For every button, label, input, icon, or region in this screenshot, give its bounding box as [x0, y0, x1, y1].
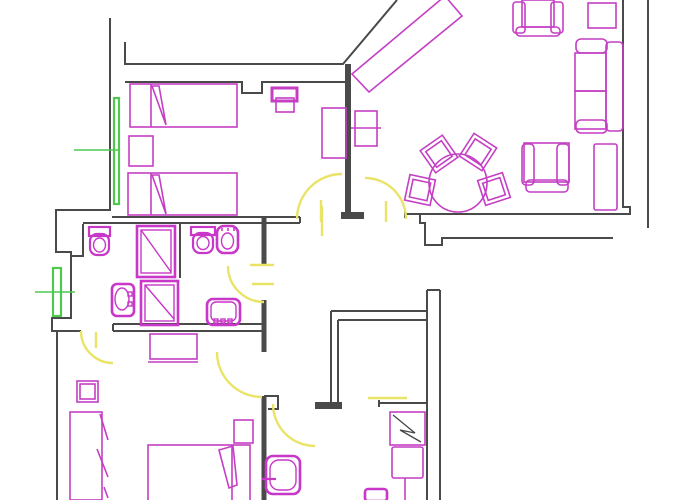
- toilet-door-foot: [315, 402, 342, 409]
- floor-plan-image: [0, 0, 692, 500]
- floor-plan-page: [0, 0, 692, 500]
- hall-divider-foot: [341, 212, 364, 219]
